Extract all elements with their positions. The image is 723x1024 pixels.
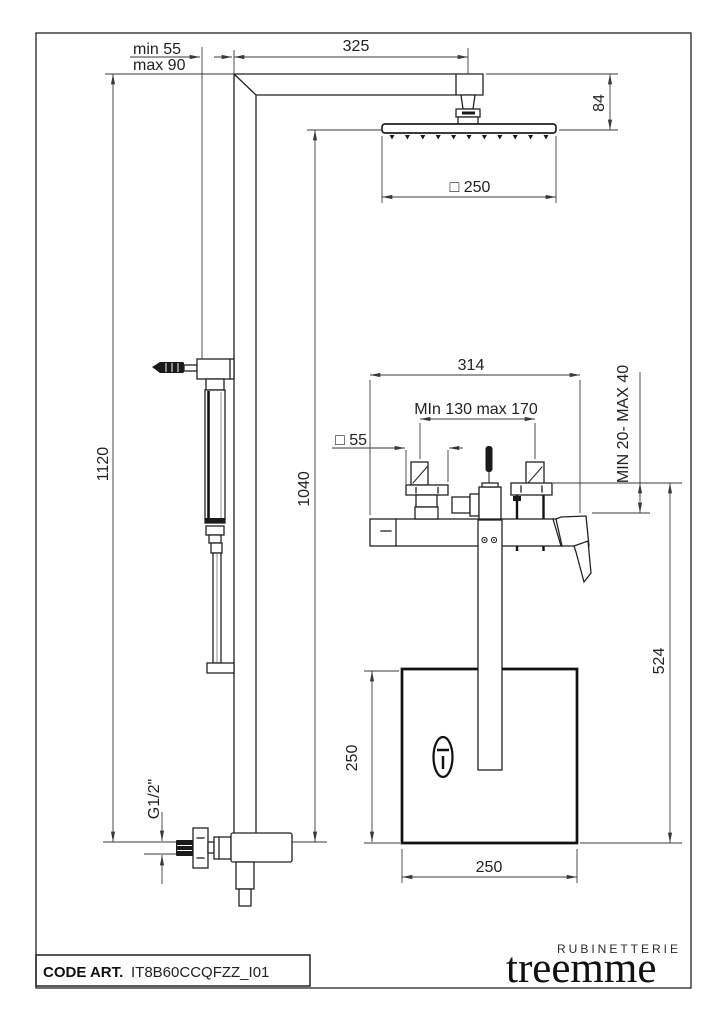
shower-head-ball-joint (456, 95, 480, 124)
brand-logo: RUBINETTERIE treemme (506, 942, 681, 992)
dimension-annotations: min 55 max 90 325 84 □ 250 1120 (95, 38, 682, 884)
hand-shower-holder (197, 359, 234, 379)
rain-shower-head (382, 124, 556, 140)
mixer-lever-base (556, 516, 589, 546)
dim-label: 314 (458, 357, 485, 374)
dim-label: 1120 (95, 447, 112, 482)
dim-bracket-depth: min 55 max 90 (130, 41, 234, 359)
dim-label: G1/2" (146, 779, 163, 819)
dim-arm-length: 325 (234, 38, 468, 74)
mixer-deck-bar (370, 519, 563, 546)
dim-mounting-depth: MIN 20- MAX 40 (553, 365, 682, 513)
dim-label: 325 (343, 38, 370, 55)
dim-label: □ 250 (450, 179, 491, 196)
dim-head-height: 1040 (296, 130, 382, 842)
left-handle (406, 462, 448, 519)
dim-label: 250 (476, 859, 503, 876)
dim-label: 84 (591, 94, 608, 112)
hand-shower (152, 359, 234, 673)
drawing-page: min 55 max 90 325 84 □ 250 1120 (0, 0, 723, 1024)
diverter-rod (486, 446, 493, 472)
dim-label: 1040 (296, 471, 313, 507)
drawing-border (36, 33, 691, 988)
dim-label: 524 (651, 648, 668, 675)
dim-spout-drop: 524 (580, 483, 682, 843)
dim-head-offset: 84 (486, 74, 618, 130)
dim-head-size: □ 250 (382, 136, 556, 203)
code-art-label: CODE ART. (43, 964, 123, 981)
dim-plate-height: 250 (344, 671, 400, 843)
dim-label: MIN 20- MAX 40 (615, 365, 632, 483)
dim-label: □ 55 (335, 432, 367, 449)
nozzle-icons (390, 135, 549, 140)
dim-plate-width: 250 (402, 849, 577, 883)
right-handle (511, 462, 552, 495)
dim-label: 250 (344, 745, 361, 772)
code-art-value: IT8B60CCQFZZ_I01 (131, 964, 269, 981)
diverter-knob-symbol (434, 737, 453, 777)
mixer-cartridge-body (479, 487, 501, 519)
spout-column (478, 520, 502, 770)
dim-escutcheon-size: □ 55 (332, 432, 463, 484)
dim-label: MIn 130 max 170 (414, 401, 538, 418)
brand-name-text: treemme (506, 945, 656, 992)
dim-label: max 90 (133, 57, 186, 74)
dim-label: min 55 (133, 41, 181, 58)
title-block: CODE ART. IT8B60CCQFZZ_I01 (36, 955, 310, 986)
inlet-valve-side-view (176, 828, 292, 906)
shower-column-side-view (234, 74, 483, 833)
mixer-lever-handle (574, 541, 591, 582)
dim-inlet-thread: G1/2" (144, 779, 176, 884)
dim-handle-spacing: MIn 130 max 170 (414, 401, 538, 459)
technical-drawing: min 55 max 90 325 84 □ 250 1120 (0, 0, 723, 1024)
